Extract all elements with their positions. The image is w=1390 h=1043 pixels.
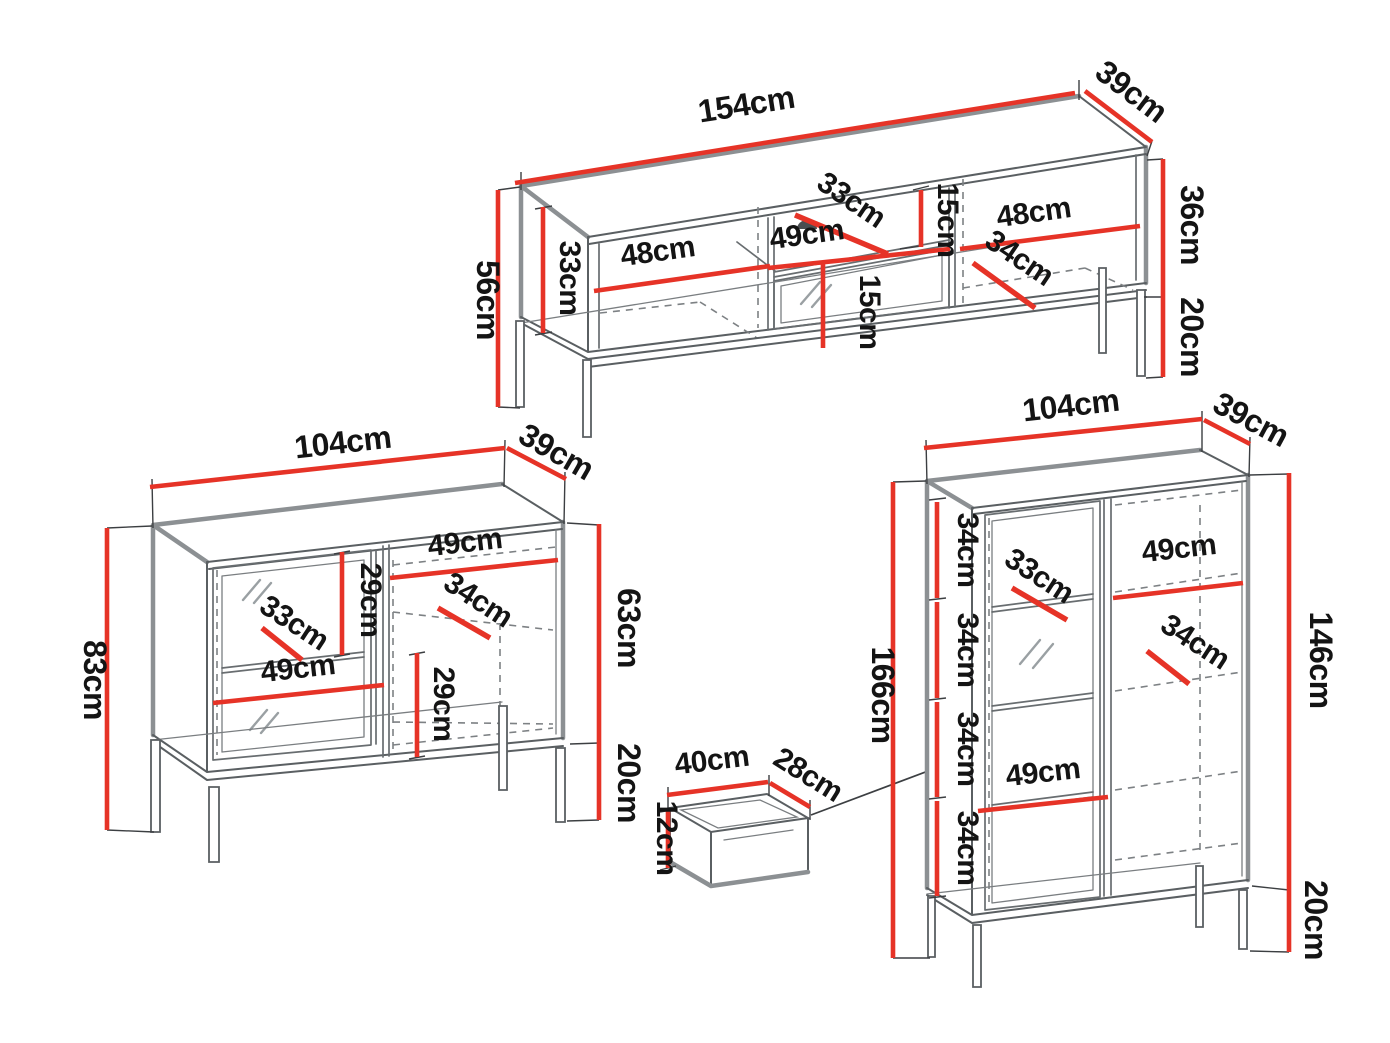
dc-section3-label: 34cm: [951, 712, 984, 787]
tv-leg-front-left: [583, 360, 591, 437]
sb-leg-front-right: [556, 748, 565, 822]
dc-leg-back-right: [1196, 866, 1203, 927]
dc-section1-label: 34cm: [951, 513, 984, 588]
tv-leg-height-label: 20cm: [1174, 297, 1210, 377]
dc-section4-label: 34cm: [951, 811, 984, 886]
tv-height-label: 56cm: [470, 260, 506, 340]
sb-body-height-label: 63cm: [611, 588, 647, 668]
dc-leg-front-right: [1239, 890, 1247, 949]
sb-lower-section-label: 29cm: [427, 667, 460, 742]
tv-upper-niche-label: 15cm: [931, 183, 964, 258]
drawer-height-label: 12cm: [650, 801, 683, 876]
dc-height-label: 166cm: [865, 646, 901, 743]
diagram-canvas: 154cm 39cm 56cm 33cm 48cm 49cm 33cm 15cm…: [0, 0, 1390, 1043]
sideboard-drawing: 104cm 39cm 83cm 29cm 33cm 49cm 34cm 49cm…: [77, 416, 647, 862]
tv-leg-back-left: [516, 321, 524, 407]
sb-leg-back-left: [151, 740, 160, 832]
drawer-width-label: 40cm: [673, 740, 751, 782]
dc-leg-height-label: 20cm: [1298, 880, 1334, 960]
dc-depth-label: 39cm: [1207, 385, 1294, 454]
dc-width-label: 104cm: [1020, 382, 1121, 429]
tv-width-label: 154cm: [695, 79, 797, 130]
tv-lower-niche-label: 15cm: [853, 275, 886, 350]
furniture-dimensions-diagram: 154cm 39cm 56cm 33cm 48cm 49cm 33cm 15cm…: [0, 0, 1390, 1043]
dc-section2-label: 34cm: [951, 613, 984, 688]
drawer-depth-label: 28cm: [768, 741, 849, 809]
dc-body-height-label: 146cm: [1303, 611, 1339, 708]
sb-front-face: [207, 522, 563, 772]
sb-leg-front-left: [209, 787, 219, 862]
tv-inner-height-label: 33cm: [553, 241, 586, 316]
dc-leg-front-left: [973, 925, 981, 987]
sb-leg-height-label: 20cm: [611, 743, 647, 823]
sb-upper-section-label: 29cm: [354, 563, 387, 638]
tv-leg-front-right: [1137, 290, 1145, 376]
tv-leg-back-right: [1099, 268, 1106, 353]
sb-width-label: 104cm: [292, 419, 393, 466]
sb-leg-back-right: [499, 706, 507, 790]
dc-leg-back-left: [928, 896, 935, 957]
sb-height-label: 83cm: [77, 640, 113, 720]
tv-body-height-label: 36cm: [1174, 185, 1210, 265]
tv-stand-drawing: 154cm 39cm 56cm 33cm 48cm 49cm 33cm 15cm…: [470, 53, 1210, 437]
display-cabinet-drawing: 104cm 39cm 166cm 34cm 34cm 34cm 34cm 33c…: [865, 382, 1339, 987]
